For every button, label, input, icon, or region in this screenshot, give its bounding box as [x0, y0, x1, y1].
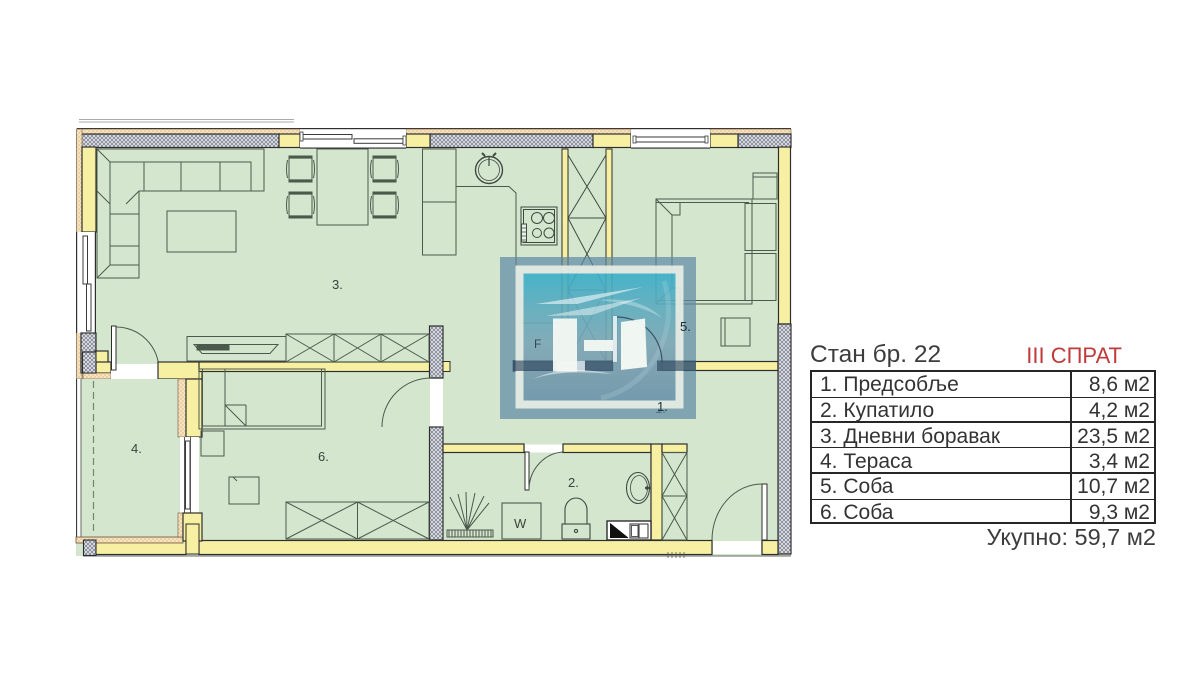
svg-text:1.: 1. [657, 399, 668, 414]
svg-text:2.: 2. [568, 475, 579, 490]
svg-text:5.: 5. [680, 319, 691, 334]
svg-text:W: W [514, 516, 527, 531]
svg-text:6.: 6. [318, 449, 329, 464]
svg-text:F: F [534, 337, 541, 351]
svg-text:4.: 4. [131, 441, 142, 456]
svg-text:3.: 3. [332, 277, 343, 292]
